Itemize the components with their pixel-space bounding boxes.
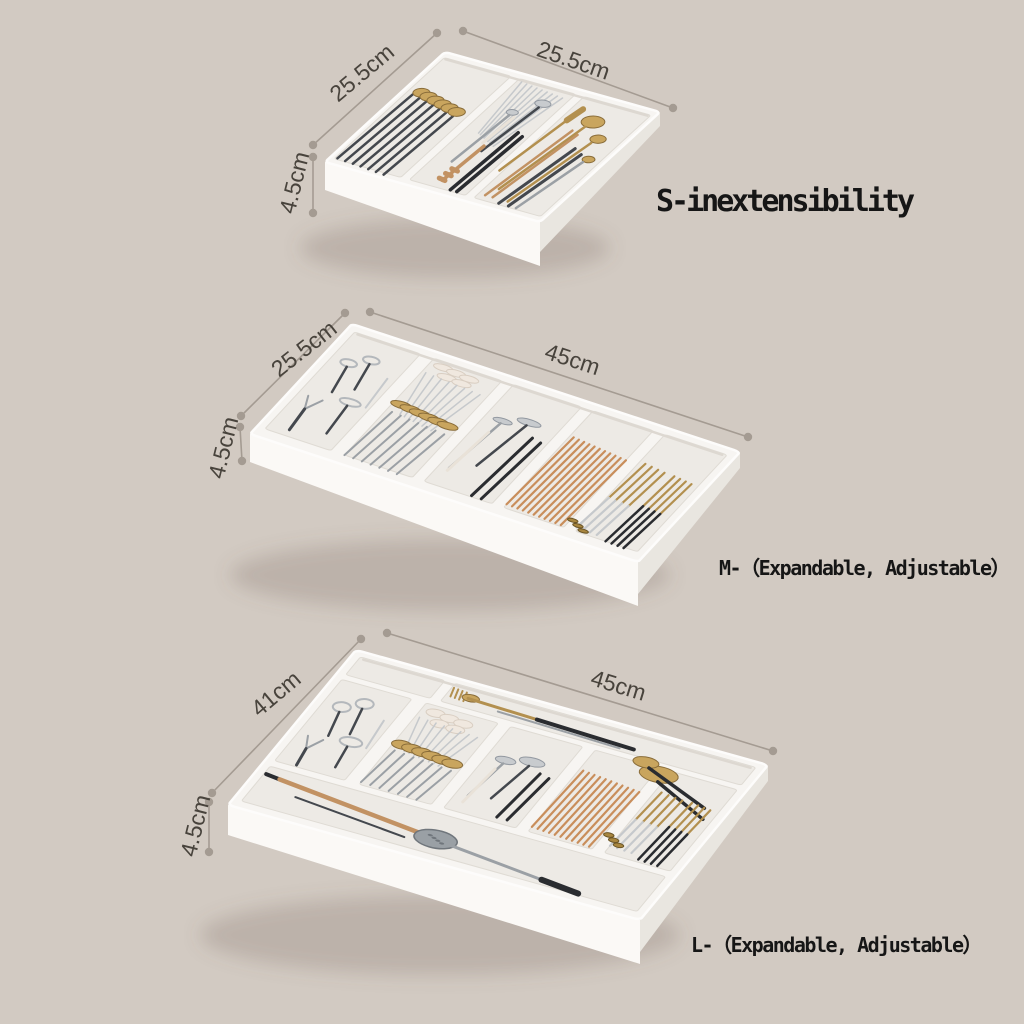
size-label-large: L-（Expandable, Adjustable） [691,929,981,958]
product-dimension-diagram: 25.5cm 25.5cm 4.5cm [0,0,1024,1024]
dim-label-small-width: 25.5cm [534,36,614,85]
dim-label-large-width: 45cm [588,665,649,706]
dim-label-large-depth: 41cm [246,665,306,721]
size-label-small: S-inextensibility [656,184,912,219]
tray-medium [230,324,740,611]
size-label-medium: M-（Expandable, Adjustable） [719,552,1009,581]
dim-label-medium-height: 4.5cm [203,414,243,481]
product-illustration: 25.5cm 25.5cm 4.5cm [0,0,1024,1024]
dim-label-small-depth: 25.5cm [325,38,400,106]
dim-label-small-height: 4.5cm [274,149,314,216]
dim-label-medium-width: 45cm [542,338,604,380]
